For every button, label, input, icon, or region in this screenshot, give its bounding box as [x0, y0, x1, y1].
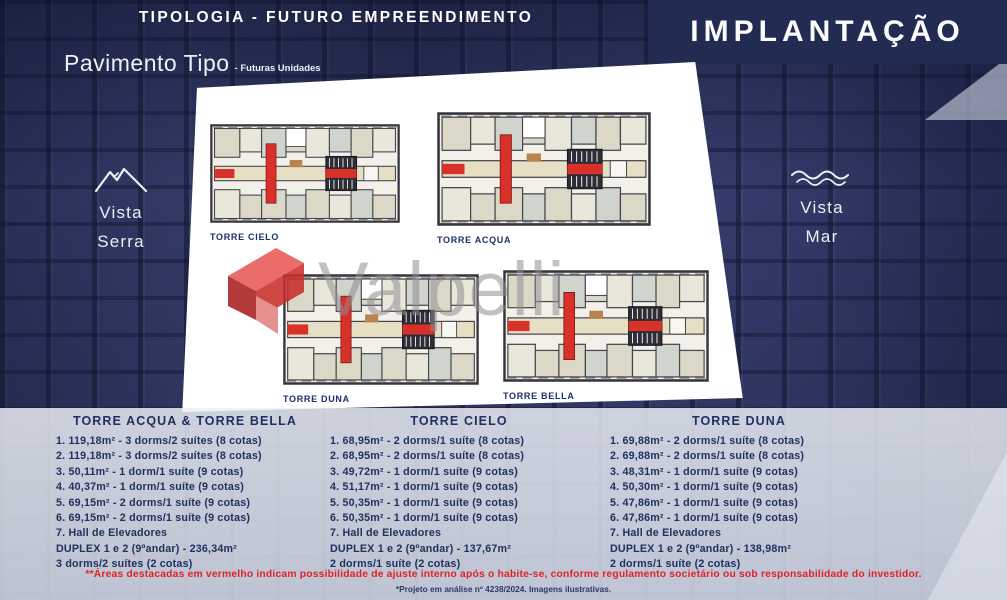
vista-serra-line2: Serra	[75, 232, 167, 252]
implantacao-slide: TIPOLOGIA - FUTURO EMPREENDIMENTO IMPLAN…	[0, 0, 1007, 600]
spec-line: 1. 119,18m² - 3 dorms/2 suítes (8 cotas)	[56, 434, 314, 449]
duplex-line: DUPLEX 1 e 2 (9ºandar) - 137,67m²	[330, 542, 588, 557]
disclaimer-text: **Áreas destacadas em vermelho indicam p…	[0, 569, 1007, 580]
waves-icon	[791, 167, 853, 189]
red-ribbon-logo	[220, 246, 332, 338]
pavimento-tipo-label: Pavimento Tipo	[64, 50, 230, 77]
watermark-text: Valpelli	[318, 252, 565, 328]
spec-line: 6. 47,86m² - 1 dorm/1 suíte (9 cotas)	[610, 511, 868, 526]
spec-line: 1. 69,88m² - 2 dorms/1 suíte (8 cotas)	[610, 434, 868, 449]
spec-title: TORRE DUNA	[610, 414, 868, 428]
spec-line: 6. 69,15m² - 2 dorms/1 suíte (9 cotas)	[56, 511, 314, 526]
project-note: *Projeto em análise nº 4238/2024. Imagen…	[0, 584, 1007, 594]
floorplan-torre-acqua: TORRE ACQUA	[437, 112, 651, 245]
spec-line: 3. 49,72m² - 1 dorm/1 suíte (9 cotas)	[330, 465, 588, 480]
vista-serra-block: Vista Serra	[75, 164, 167, 252]
duplex-line: DUPLEX 1 e 2 (9ºandar) - 236,34m²	[56, 542, 314, 557]
spec-line: 4. 51,17m² - 1 dorm/1 suíte (9 cotas)	[330, 480, 588, 495]
spec-line: 4. 40,37m² - 1 dorm/1 suíte (9 cotas)	[56, 480, 314, 495]
duplex-line: DUPLEX 1 e 2 (9ºandar) - 138,98m²	[610, 542, 868, 557]
spec-line: 6. 50,35m² - 1 dorm/1 suíte (9 cotas)	[330, 511, 588, 526]
page-title: TIPOLOGIA - FUTURO EMPREENDIMENTO	[86, 9, 586, 27]
spec-line: 3. 48,31m² - 1 dorm/1 suíte (9 cotas)	[610, 465, 868, 480]
implantacao-panel: IMPLANTAÇÃO	[648, 0, 1007, 64]
floorplan-label: TORRE BELLA	[503, 391, 709, 401]
spec-line: 1. 68,95m² - 2 dorms/1 suíte (8 cotas)	[330, 434, 588, 449]
vista-mar-block: Vista Mar	[776, 167, 868, 247]
spec-title: TORRE CIELO	[330, 414, 588, 428]
spec-line: 7. Hall de Elevadores	[610, 526, 868, 541]
spec-line: 4. 50,30m² - 1 dorm/1 suíte (9 cotas)	[610, 480, 868, 495]
floorplan-drawing	[437, 112, 651, 226]
spec-line: 2. 119,18m² - 3 dorms/2 suítes (8 cotas)	[56, 449, 314, 464]
futuras-unidades-note: - Futuras Unidades	[235, 63, 321, 74]
spec-column-cielo: TORRE CIELO 1. 68,95m² - 2 dorms/1 suíte…	[330, 414, 588, 573]
spec-line: 5. 50,35m² - 1 dorm/1 suíte (9 cotas)	[330, 496, 588, 511]
spec-title: TORRE ACQUA & TORRE BELLA	[56, 414, 314, 428]
implantacao-title: IMPLANTAÇÃO	[690, 15, 964, 49]
subtitle-row: Pavimento Tipo - Futuras Unidades	[64, 50, 321, 77]
spec-line: 5. 47,86m² - 1 dorm/1 suíte (9 cotas)	[610, 496, 868, 511]
vista-mar-line2: Mar	[776, 227, 868, 247]
floorplan-label: TORRE ACQUA	[437, 235, 651, 245]
floorplan-label: TORRE DUNA	[283, 394, 479, 404]
vista-serra-line1: Vista	[75, 203, 167, 223]
floorplan-label: TORRE CIELO	[210, 232, 400, 242]
spec-line: 7. Hall de Elevadores	[330, 526, 588, 541]
spec-line: 2. 69,88m² - 2 dorms/1 suíte (8 cotas)	[610, 449, 868, 464]
spec-line: 3. 50,11m² - 1 dorm/1 suíte (9 cotas)	[56, 465, 314, 480]
floorplan-torre-cielo: TORRE CIELO	[210, 124, 400, 242]
spec-column-duna: TORRE DUNA 1. 69,88m² - 2 dorms/1 suíte …	[610, 414, 868, 573]
spec-line: 7. Hall de Elevadores	[56, 526, 314, 541]
floorplan-drawing	[210, 124, 400, 223]
vista-mar-line1: Vista	[776, 198, 868, 218]
spec-line: 5. 69,15m² - 2 dorms/1 suíte (9 cotas)	[56, 496, 314, 511]
spec-column-acqua-bella: TORRE ACQUA & TORRE BELLA 1. 119,18m² - …	[56, 414, 314, 573]
mountain-icon	[94, 164, 148, 194]
spec-line: 2. 68,95m² - 2 dorms/1 suíte (8 cotas)	[330, 449, 588, 464]
